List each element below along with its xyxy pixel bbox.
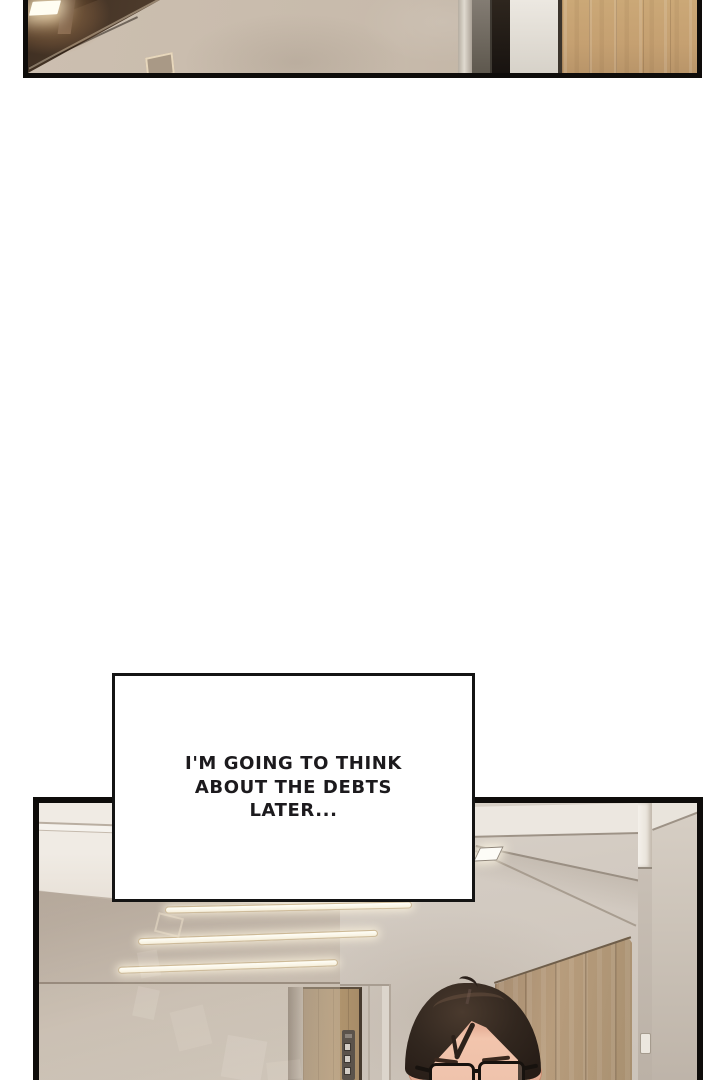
glass-reflection [221,1035,268,1080]
switch-button [344,1043,351,1051]
white-wall-strip [510,0,558,73]
character-head [405,979,545,1080]
glass-reflection [137,949,161,978]
ceiling-strip [467,803,641,838]
ceiling-light-panel [29,0,61,15]
glass-reflection [266,1059,302,1080]
speech-line: LATER... [185,799,402,823]
right-wall [652,803,697,1080]
comic-page: I'M GOING TO THINK ABOUT THE DEBTS LATER… [0,0,720,1080]
far-door-frame [382,986,389,1080]
white-wall-upper-left [39,803,113,900]
character-glasses-right-lens [478,1061,525,1080]
wood-door-panel [562,0,697,73]
leaning-frame-object [145,52,175,78]
panel-top [23,0,702,78]
white-pillar [638,803,652,869]
far-corner-line [389,984,391,1080]
switch-slot [345,1034,352,1038]
switch-button [344,1055,351,1063]
character-glasses-bridge [472,1069,481,1073]
glass-pane-edge-strip [458,0,472,73]
speech-line: I'M GOING TO THINK [185,752,402,776]
switch-button [344,1067,351,1075]
gray-wall-strip [472,0,492,73]
character-glasses-left-lens [429,1063,475,1080]
speech-line: ABOUT THE DEBTS [185,776,402,800]
dark-door-frame-strip [492,0,510,73]
speech-text: I'M GOING TO THINK ABOUT THE DEBTS LATER… [185,752,402,823]
wall-corner-line [368,986,370,1080]
speech-bubble: I'M GOING TO THINK ABOUT THE DEBTS LATER… [112,673,475,902]
wall-switch-box [640,1033,651,1054]
